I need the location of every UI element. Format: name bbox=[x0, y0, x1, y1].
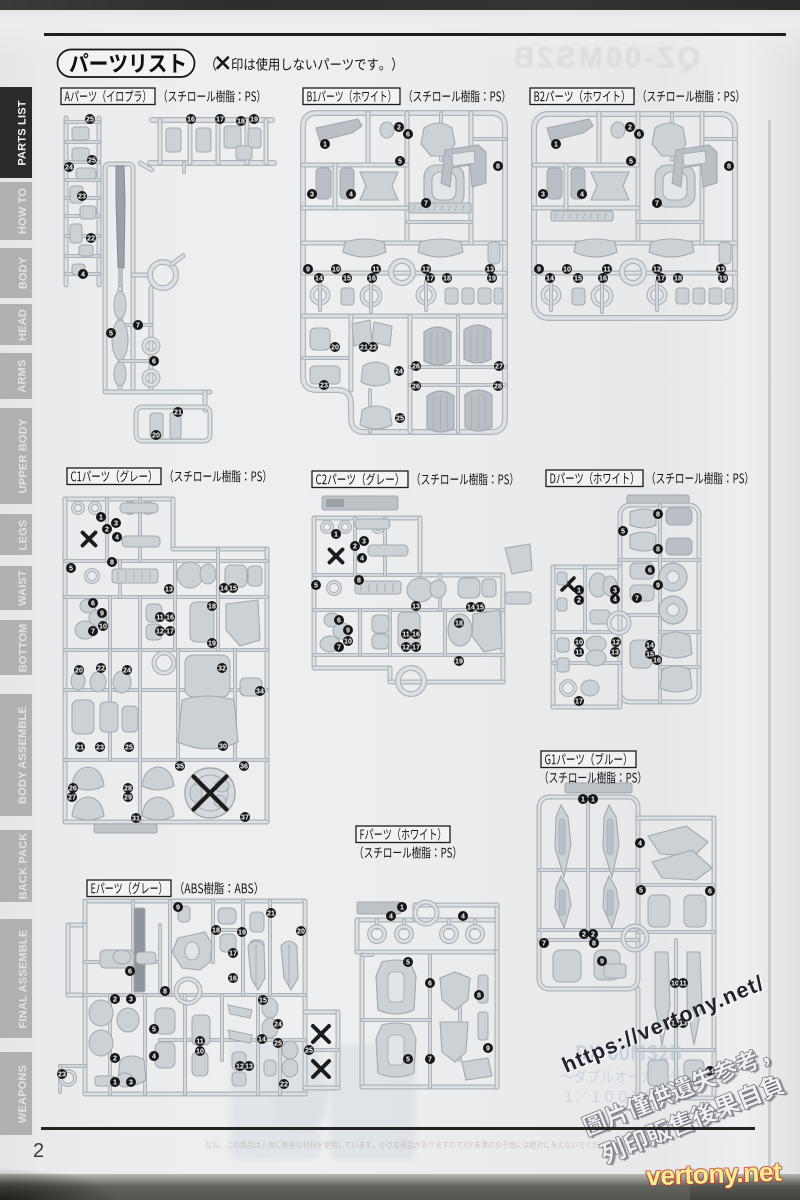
svg-text:1: 1 bbox=[113, 1079, 117, 1087]
svg-text:11: 11 bbox=[402, 631, 410, 639]
svg-text:35: 35 bbox=[176, 763, 184, 771]
svg-text:18: 18 bbox=[208, 603, 216, 611]
svg-text:6: 6 bbox=[637, 131, 641, 139]
svg-text:20: 20 bbox=[297, 928, 305, 936]
svg-text:8: 8 bbox=[477, 992, 481, 1000]
svg-text:7: 7 bbox=[337, 644, 341, 652]
svg-text:27: 27 bbox=[68, 794, 76, 802]
svg-text:8: 8 bbox=[727, 163, 731, 171]
svg-text:15: 15 bbox=[259, 997, 267, 1005]
svg-text:5: 5 bbox=[406, 1056, 410, 1064]
svg-text:21: 21 bbox=[76, 744, 84, 752]
svg-text:4: 4 bbox=[360, 555, 364, 563]
svg-text:1: 1 bbox=[334, 531, 338, 539]
svg-text:9: 9 bbox=[100, 610, 104, 618]
svg-text:2: 2 bbox=[353, 543, 357, 551]
svg-text:17: 17 bbox=[426, 275, 434, 283]
svg-text:2: 2 bbox=[113, 996, 117, 1004]
svg-text:16: 16 bbox=[368, 275, 376, 283]
svg-text:24: 24 bbox=[395, 368, 403, 376]
svg-text:14: 14 bbox=[315, 275, 323, 283]
svg-text:16: 16 bbox=[187, 116, 195, 124]
svg-text:22: 22 bbox=[369, 344, 377, 352]
svg-text:6: 6 bbox=[128, 968, 132, 976]
svg-text:10: 10 bbox=[332, 266, 340, 274]
svg-text:6: 6 bbox=[91, 600, 95, 608]
svg-text:14: 14 bbox=[546, 275, 554, 283]
svg-text:5: 5 bbox=[621, 528, 625, 536]
svg-text:5: 5 bbox=[314, 582, 318, 590]
svg-text:8: 8 bbox=[656, 511, 660, 519]
svg-text:9: 9 bbox=[346, 627, 350, 635]
svg-text:25: 25 bbox=[88, 157, 96, 165]
svg-text:8: 8 bbox=[163, 988, 167, 996]
svg-text:4: 4 bbox=[349, 191, 353, 199]
svg-text:10: 10 bbox=[99, 623, 107, 631]
svg-text:9: 9 bbox=[176, 904, 180, 912]
svg-text:16: 16 bbox=[599, 275, 607, 283]
svg-text:16: 16 bbox=[229, 975, 237, 983]
svg-text:12: 12 bbox=[612, 639, 620, 647]
svg-text:11: 11 bbox=[575, 649, 583, 657]
svg-text:7: 7 bbox=[635, 595, 639, 603]
svg-text:16: 16 bbox=[166, 614, 174, 622]
svg-text:4: 4 bbox=[580, 191, 584, 199]
svg-text:24: 24 bbox=[123, 667, 131, 675]
svg-text:12: 12 bbox=[422, 266, 430, 274]
svg-text:16: 16 bbox=[412, 631, 420, 639]
svg-text:9: 9 bbox=[537, 266, 541, 274]
svg-text:8: 8 bbox=[110, 559, 114, 567]
svg-text:2: 2 bbox=[582, 931, 586, 939]
svg-text:17: 17 bbox=[229, 950, 237, 958]
svg-text:29: 29 bbox=[124, 794, 132, 802]
svg-text:19: 19 bbox=[208, 640, 216, 648]
svg-text:28: 28 bbox=[494, 383, 502, 391]
svg-text:5: 5 bbox=[639, 887, 643, 895]
svg-text:25: 25 bbox=[274, 1040, 282, 1048]
svg-text:21: 21 bbox=[267, 910, 275, 918]
svg-text:23: 23 bbox=[78, 193, 86, 201]
svg-text:22: 22 bbox=[97, 665, 105, 673]
svg-text:5: 5 bbox=[109, 330, 113, 338]
svg-text:7: 7 bbox=[91, 628, 95, 636]
svg-text:2: 2 bbox=[577, 597, 581, 605]
svg-text:1: 1 bbox=[400, 904, 404, 912]
svg-text:13: 13 bbox=[165, 586, 173, 594]
svg-text:37: 37 bbox=[241, 814, 249, 822]
svg-text:1: 1 bbox=[323, 141, 327, 149]
svg-text:9: 9 bbox=[486, 1045, 490, 1053]
svg-text:17: 17 bbox=[166, 628, 174, 636]
svg-text:30: 30 bbox=[219, 743, 227, 751]
svg-text:10: 10 bbox=[563, 266, 571, 274]
svg-text:7: 7 bbox=[542, 940, 546, 948]
svg-text:7: 7 bbox=[424, 200, 428, 208]
svg-text:10: 10 bbox=[344, 638, 352, 646]
svg-text:8: 8 bbox=[496, 163, 500, 171]
svg-text:8: 8 bbox=[656, 546, 660, 554]
svg-text:13: 13 bbox=[486, 266, 494, 274]
svg-text:3: 3 bbox=[362, 538, 366, 546]
svg-text:18: 18 bbox=[674, 275, 682, 283]
svg-text:10: 10 bbox=[671, 980, 679, 988]
svg-text:2: 2 bbox=[591, 931, 595, 939]
svg-text:25: 25 bbox=[86, 116, 94, 124]
svg-text:19: 19 bbox=[488, 275, 496, 283]
svg-text:5: 5 bbox=[152, 1026, 156, 1034]
svg-text:17: 17 bbox=[216, 116, 224, 124]
svg-text:25: 25 bbox=[125, 744, 133, 752]
svg-text:25: 25 bbox=[396, 415, 404, 423]
svg-text:14: 14 bbox=[646, 642, 654, 650]
svg-text:15: 15 bbox=[343, 275, 351, 283]
svg-text:36: 36 bbox=[240, 763, 248, 771]
svg-text:13: 13 bbox=[717, 266, 725, 274]
svg-text:7: 7 bbox=[655, 200, 659, 208]
svg-text:10: 10 bbox=[575, 639, 583, 647]
svg-text:1: 1 bbox=[591, 796, 595, 804]
svg-text:11: 11 bbox=[372, 266, 380, 274]
svg-text:10: 10 bbox=[196, 1048, 204, 1056]
svg-text:16: 16 bbox=[653, 657, 661, 665]
svg-text:13: 13 bbox=[611, 649, 619, 657]
svg-text:12: 12 bbox=[402, 644, 410, 652]
svg-text:5: 5 bbox=[398, 158, 402, 166]
svg-text:17: 17 bbox=[657, 275, 665, 283]
svg-text:2: 2 bbox=[397, 124, 401, 132]
svg-text:12: 12 bbox=[236, 1063, 244, 1071]
svg-text:9: 9 bbox=[600, 958, 604, 966]
svg-text:3: 3 bbox=[310, 191, 314, 199]
svg-text:2: 2 bbox=[113, 1055, 117, 1063]
svg-text:1: 1 bbox=[99, 514, 103, 522]
svg-text:15: 15 bbox=[574, 275, 582, 283]
svg-text:21: 21 bbox=[174, 409, 182, 417]
svg-text:21: 21 bbox=[360, 344, 368, 352]
svg-text:19: 19 bbox=[250, 116, 258, 124]
svg-text:11: 11 bbox=[196, 1038, 204, 1046]
svg-text:24: 24 bbox=[65, 164, 73, 172]
svg-text:11: 11 bbox=[156, 614, 164, 622]
svg-text:20: 20 bbox=[75, 667, 83, 675]
svg-text:18: 18 bbox=[455, 620, 463, 628]
svg-text:14: 14 bbox=[220, 585, 228, 593]
svg-text:3: 3 bbox=[129, 1079, 133, 1087]
svg-text:8: 8 bbox=[357, 577, 361, 585]
svg-text:9: 9 bbox=[656, 582, 660, 590]
svg-text:18: 18 bbox=[212, 927, 220, 935]
svg-text:12: 12 bbox=[156, 628, 164, 636]
svg-text:23: 23 bbox=[320, 382, 328, 390]
svg-text:3: 3 bbox=[129, 996, 133, 1004]
svg-text:26: 26 bbox=[412, 363, 420, 371]
svg-text:19: 19 bbox=[719, 275, 727, 283]
svg-text:6: 6 bbox=[406, 131, 410, 139]
svg-text:24: 24 bbox=[274, 1021, 282, 1029]
svg-text:15: 15 bbox=[229, 585, 237, 593]
svg-text:23: 23 bbox=[58, 1071, 66, 1079]
svg-text:8: 8 bbox=[592, 940, 596, 948]
svg-text:3: 3 bbox=[613, 587, 617, 595]
svg-text:19: 19 bbox=[455, 658, 463, 666]
svg-text:28: 28 bbox=[124, 785, 132, 793]
svg-text:9: 9 bbox=[306, 266, 310, 274]
svg-text:3: 3 bbox=[114, 520, 118, 528]
svg-text:4: 4 bbox=[638, 840, 642, 848]
svg-text:13: 13 bbox=[245, 1063, 253, 1071]
svg-text:18: 18 bbox=[443, 275, 451, 283]
svg-text:2: 2 bbox=[628, 124, 632, 132]
svg-text:6: 6 bbox=[428, 980, 432, 988]
svg-text:19: 19 bbox=[238, 929, 246, 937]
svg-text:4: 4 bbox=[152, 1053, 156, 1061]
svg-text:4: 4 bbox=[389, 913, 393, 921]
svg-text:4: 4 bbox=[115, 534, 119, 542]
svg-text:1: 1 bbox=[577, 587, 581, 595]
svg-text:7: 7 bbox=[136, 322, 140, 330]
svg-text:32: 32 bbox=[218, 665, 226, 673]
svg-text:4: 4 bbox=[613, 596, 617, 604]
svg-text:6: 6 bbox=[708, 888, 712, 896]
svg-text:22: 22 bbox=[87, 235, 95, 243]
svg-text:17: 17 bbox=[412, 644, 420, 652]
svg-text:3: 3 bbox=[541, 191, 545, 199]
svg-text:4: 4 bbox=[461, 913, 465, 921]
svg-text:15: 15 bbox=[476, 604, 484, 612]
svg-text:12: 12 bbox=[653, 266, 661, 274]
svg-text:26: 26 bbox=[412, 383, 420, 391]
svg-text:31: 31 bbox=[132, 815, 140, 823]
svg-text:27: 27 bbox=[495, 363, 503, 371]
svg-text:22: 22 bbox=[280, 1081, 288, 1089]
svg-text:2: 2 bbox=[105, 526, 109, 534]
svg-text:7: 7 bbox=[428, 1056, 432, 1064]
svg-text:14: 14 bbox=[467, 604, 475, 612]
svg-text:20: 20 bbox=[331, 344, 339, 352]
svg-text:6: 6 bbox=[152, 358, 156, 366]
svg-text:26: 26 bbox=[69, 785, 77, 793]
svg-text:13: 13 bbox=[412, 603, 420, 611]
svg-text:1: 1 bbox=[581, 796, 585, 804]
svg-text:1: 1 bbox=[554, 141, 558, 149]
svg-text:6: 6 bbox=[648, 567, 652, 575]
svg-text:25: 25 bbox=[305, 1047, 313, 1055]
svg-text:5: 5 bbox=[69, 565, 73, 573]
svg-text:11: 11 bbox=[603, 266, 611, 274]
svg-text:14: 14 bbox=[258, 1036, 266, 1044]
svg-text:6: 6 bbox=[337, 617, 341, 625]
svg-text:20: 20 bbox=[152, 432, 160, 440]
svg-text:11: 11 bbox=[679, 980, 687, 988]
svg-text:17: 17 bbox=[575, 698, 583, 706]
svg-text:5: 5 bbox=[629, 158, 633, 166]
svg-text:34: 34 bbox=[256, 688, 264, 696]
svg-text:18: 18 bbox=[237, 118, 245, 126]
svg-text:5: 5 bbox=[406, 959, 410, 967]
svg-text:4: 4 bbox=[81, 271, 85, 279]
svg-text:23: 23 bbox=[96, 744, 104, 752]
